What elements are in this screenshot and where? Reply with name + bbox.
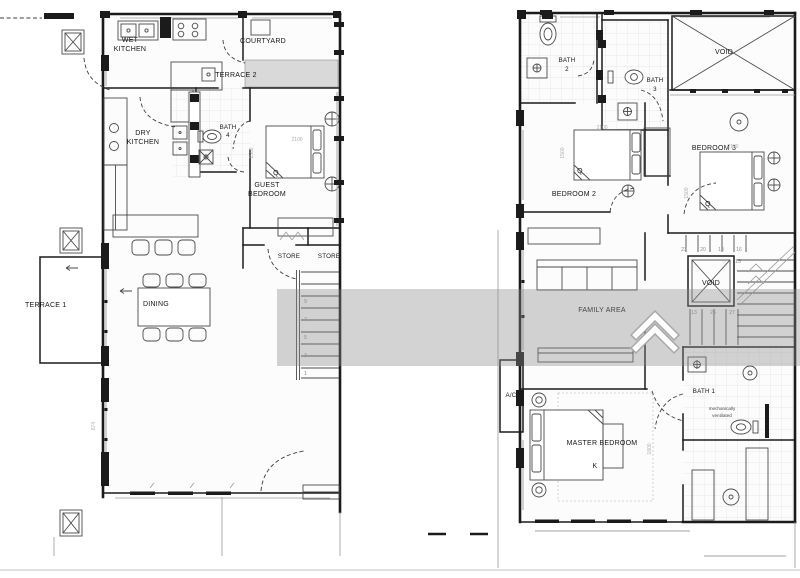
room-label-wet-kitchen: KITCHEN [114, 46, 146, 53]
room-label-bath-2: BATH [559, 57, 576, 64]
room-label-store: STORE [318, 253, 340, 260]
column-marker [62, 30, 84, 54]
room-label-terrace-2: TERRACE 2 [215, 72, 257, 79]
tall-unit [160, 17, 171, 38]
ceiling-fixture [768, 179, 780, 191]
bed-size-label: Q [577, 168, 583, 175]
floor-plan-page: 9 7 5 3 1 [0, 0, 800, 578]
dimension-text: 1500 [560, 147, 566, 158]
bed-size-label: Q [705, 201, 711, 208]
room-label-terrace-1: TERRACE 1 [25, 302, 67, 309]
room-label-bath-4: 4 [226, 132, 230, 139]
room-label-bath-3: BATH [647, 77, 664, 84]
room-label-bath-2: 2 [565, 66, 569, 73]
dimension-text: 1800 [647, 443, 653, 454]
room-label-store: STORE [278, 253, 300, 260]
neighbour-wall-stub [44, 13, 74, 19]
room-label-void-stair: VOID [702, 280, 720, 287]
stair-tread-number: 1 [304, 371, 307, 377]
room-label-courtyard: COURTYARD [240, 38, 286, 45]
dimension-text: 674 [91, 422, 97, 431]
bath1-vent-note: mechanically [709, 406, 736, 411]
room-label-dry-kitchen: DRY [135, 130, 150, 137]
ceiling-fixture [622, 185, 634, 197]
watermark-band [277, 289, 800, 366]
stair-tread-number: 15 [735, 259, 741, 265]
stair-tread-number: 16 [736, 247, 742, 253]
room-label-bath-4: BATH [220, 124, 237, 131]
floor-plan-canvas: 9 7 5 3 1 [0, 0, 800, 578]
room-label-ac: A/C [506, 392, 517, 399]
room-label-master-bedroom: MASTER BEDROOM [567, 440, 638, 447]
bedroom2-bed [574, 130, 641, 180]
column-marker [60, 510, 82, 536]
room-label-void: VOID [715, 49, 733, 56]
ground-floor-plan: 9 7 5 3 1 [0, 11, 344, 556]
shower-screen [765, 404, 769, 438]
dimension-text: 1500 [684, 187, 690, 198]
courtyard-deck-strip [245, 60, 338, 87]
room-label-guest-bedroom: BEDROOM [248, 191, 286, 198]
room-label-wet-kitchen: WET [122, 37, 139, 44]
sliding-door-track [535, 520, 786, 557]
terrace-1-outline [40, 257, 103, 363]
room-label-guest-bedroom: GUEST [254, 182, 280, 189]
room-label-dry-kitchen: KITCHEN [127, 139, 159, 146]
wardrobe-tiled-floor [683, 440, 795, 522]
page-divider-line [0, 569, 800, 571]
bed-size-label: K [593, 463, 598, 470]
stair-tread-number: 20 [700, 247, 706, 253]
watermark [277, 289, 800, 366]
room-label-bedroom-2: BEDROOM 2 [552, 191, 596, 198]
bath1-vent-note: ventilated [712, 413, 732, 418]
room-label-dining: DINING [143, 301, 169, 308]
stair-tread-number: 23 [681, 247, 687, 253]
room-label-bath-3: 3 [653, 86, 657, 93]
dimension-text: 2100 [727, 144, 738, 150]
dimension-text: 2100 [596, 125, 607, 131]
ceiling-fixture [768, 152, 780, 164]
column-marker [60, 228, 82, 253]
dimension-text: 1500 [249, 147, 255, 158]
room-label-bath-1: BATH 1 [693, 388, 716, 395]
bed-size-label: Q [273, 170, 279, 177]
dimension-text: 2100 [291, 137, 302, 143]
stair-tread-number: 18 [718, 247, 724, 253]
